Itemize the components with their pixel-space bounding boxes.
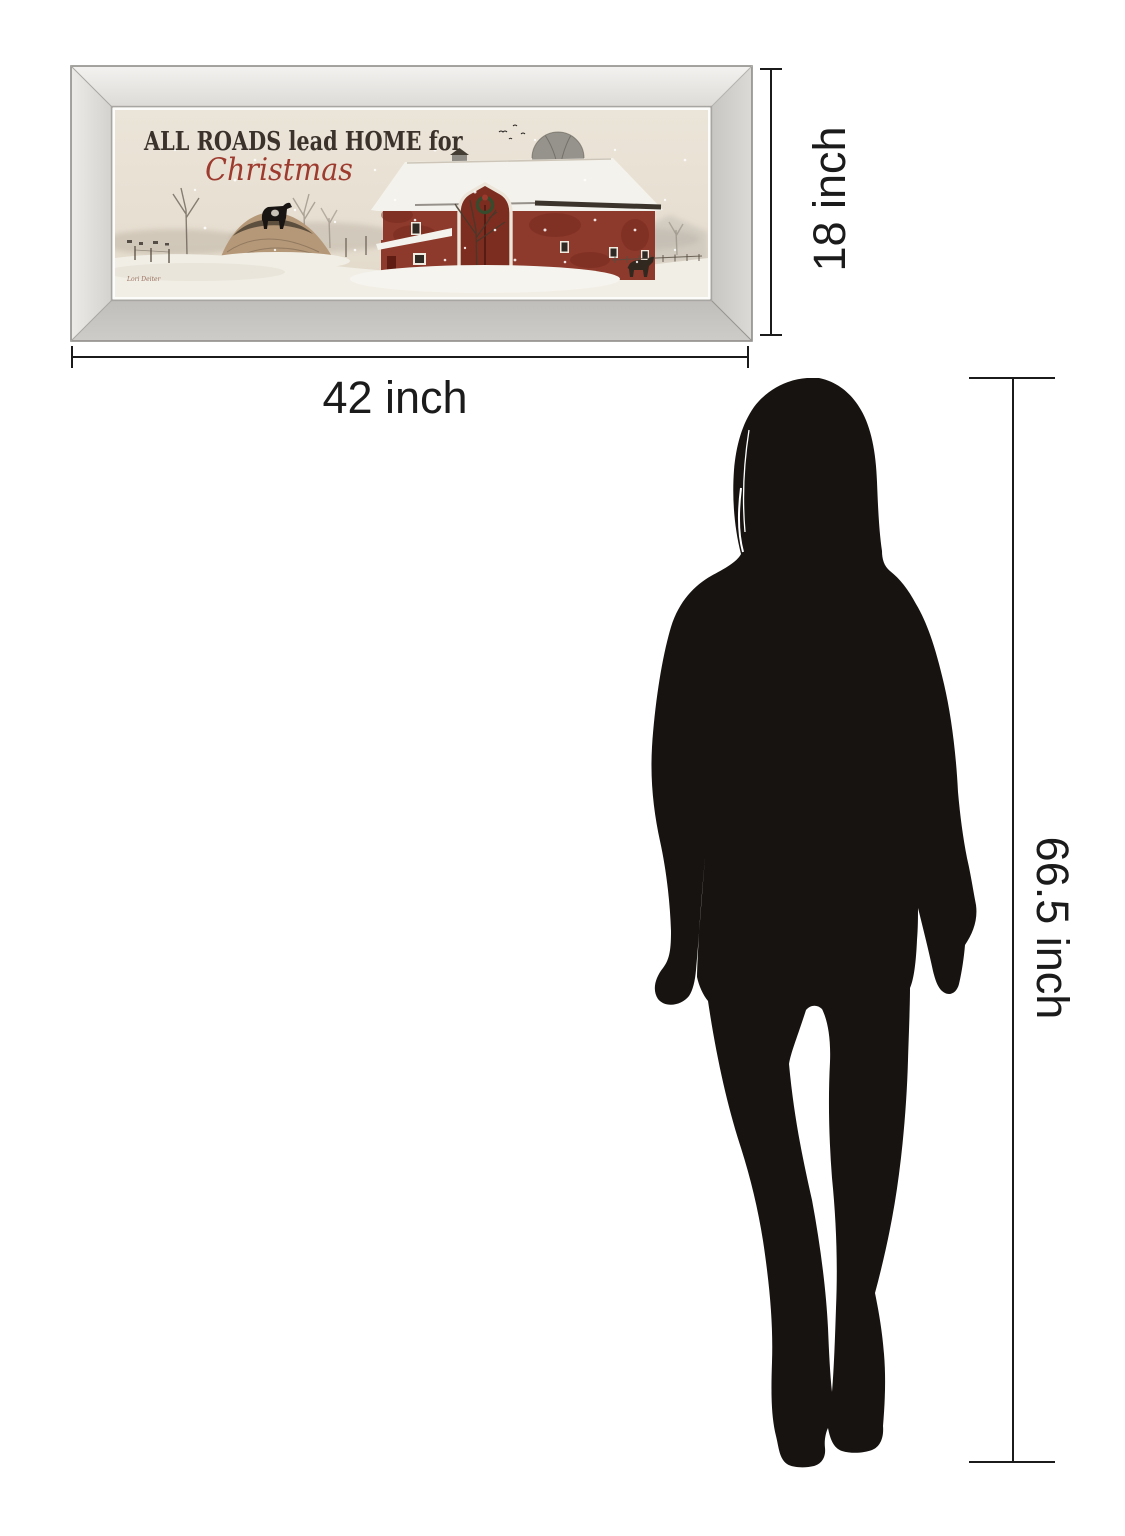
person-height-dimension-line <box>1012 377 1014 1463</box>
width-dimension-label: 42 inch <box>175 372 615 424</box>
height-dimension-tick-bottom <box>760 334 782 336</box>
height-dimension-label: 18 inch <box>804 126 856 271</box>
width-dimension-line <box>73 356 747 358</box>
snow-drift <box>350 265 620 293</box>
width-dimension-tick-left <box>71 346 73 368</box>
artist-signature: Lori Deiter <box>127 276 160 283</box>
artwork-subtitle: Christmas <box>146 152 413 188</box>
product-size-illustration: ALL ROADS lead HOME for Christmas Lori D… <box>0 0 1125 1536</box>
woman-silhouette <box>640 372 985 1474</box>
framed-artwork: ALL ROADS lead HOME for Christmas Lori D… <box>70 65 753 342</box>
width-dimension-tick-right <box>747 346 749 368</box>
height-dimension-tick-top <box>760 68 782 70</box>
artwork-print: ALL ROADS lead HOME for Christmas Lori D… <box>115 110 708 297</box>
height-dimension-line <box>770 68 772 336</box>
person-height-dimension-label: 66.5 inch <box>1026 837 1078 1020</box>
silhouette-body <box>651 378 976 1467</box>
